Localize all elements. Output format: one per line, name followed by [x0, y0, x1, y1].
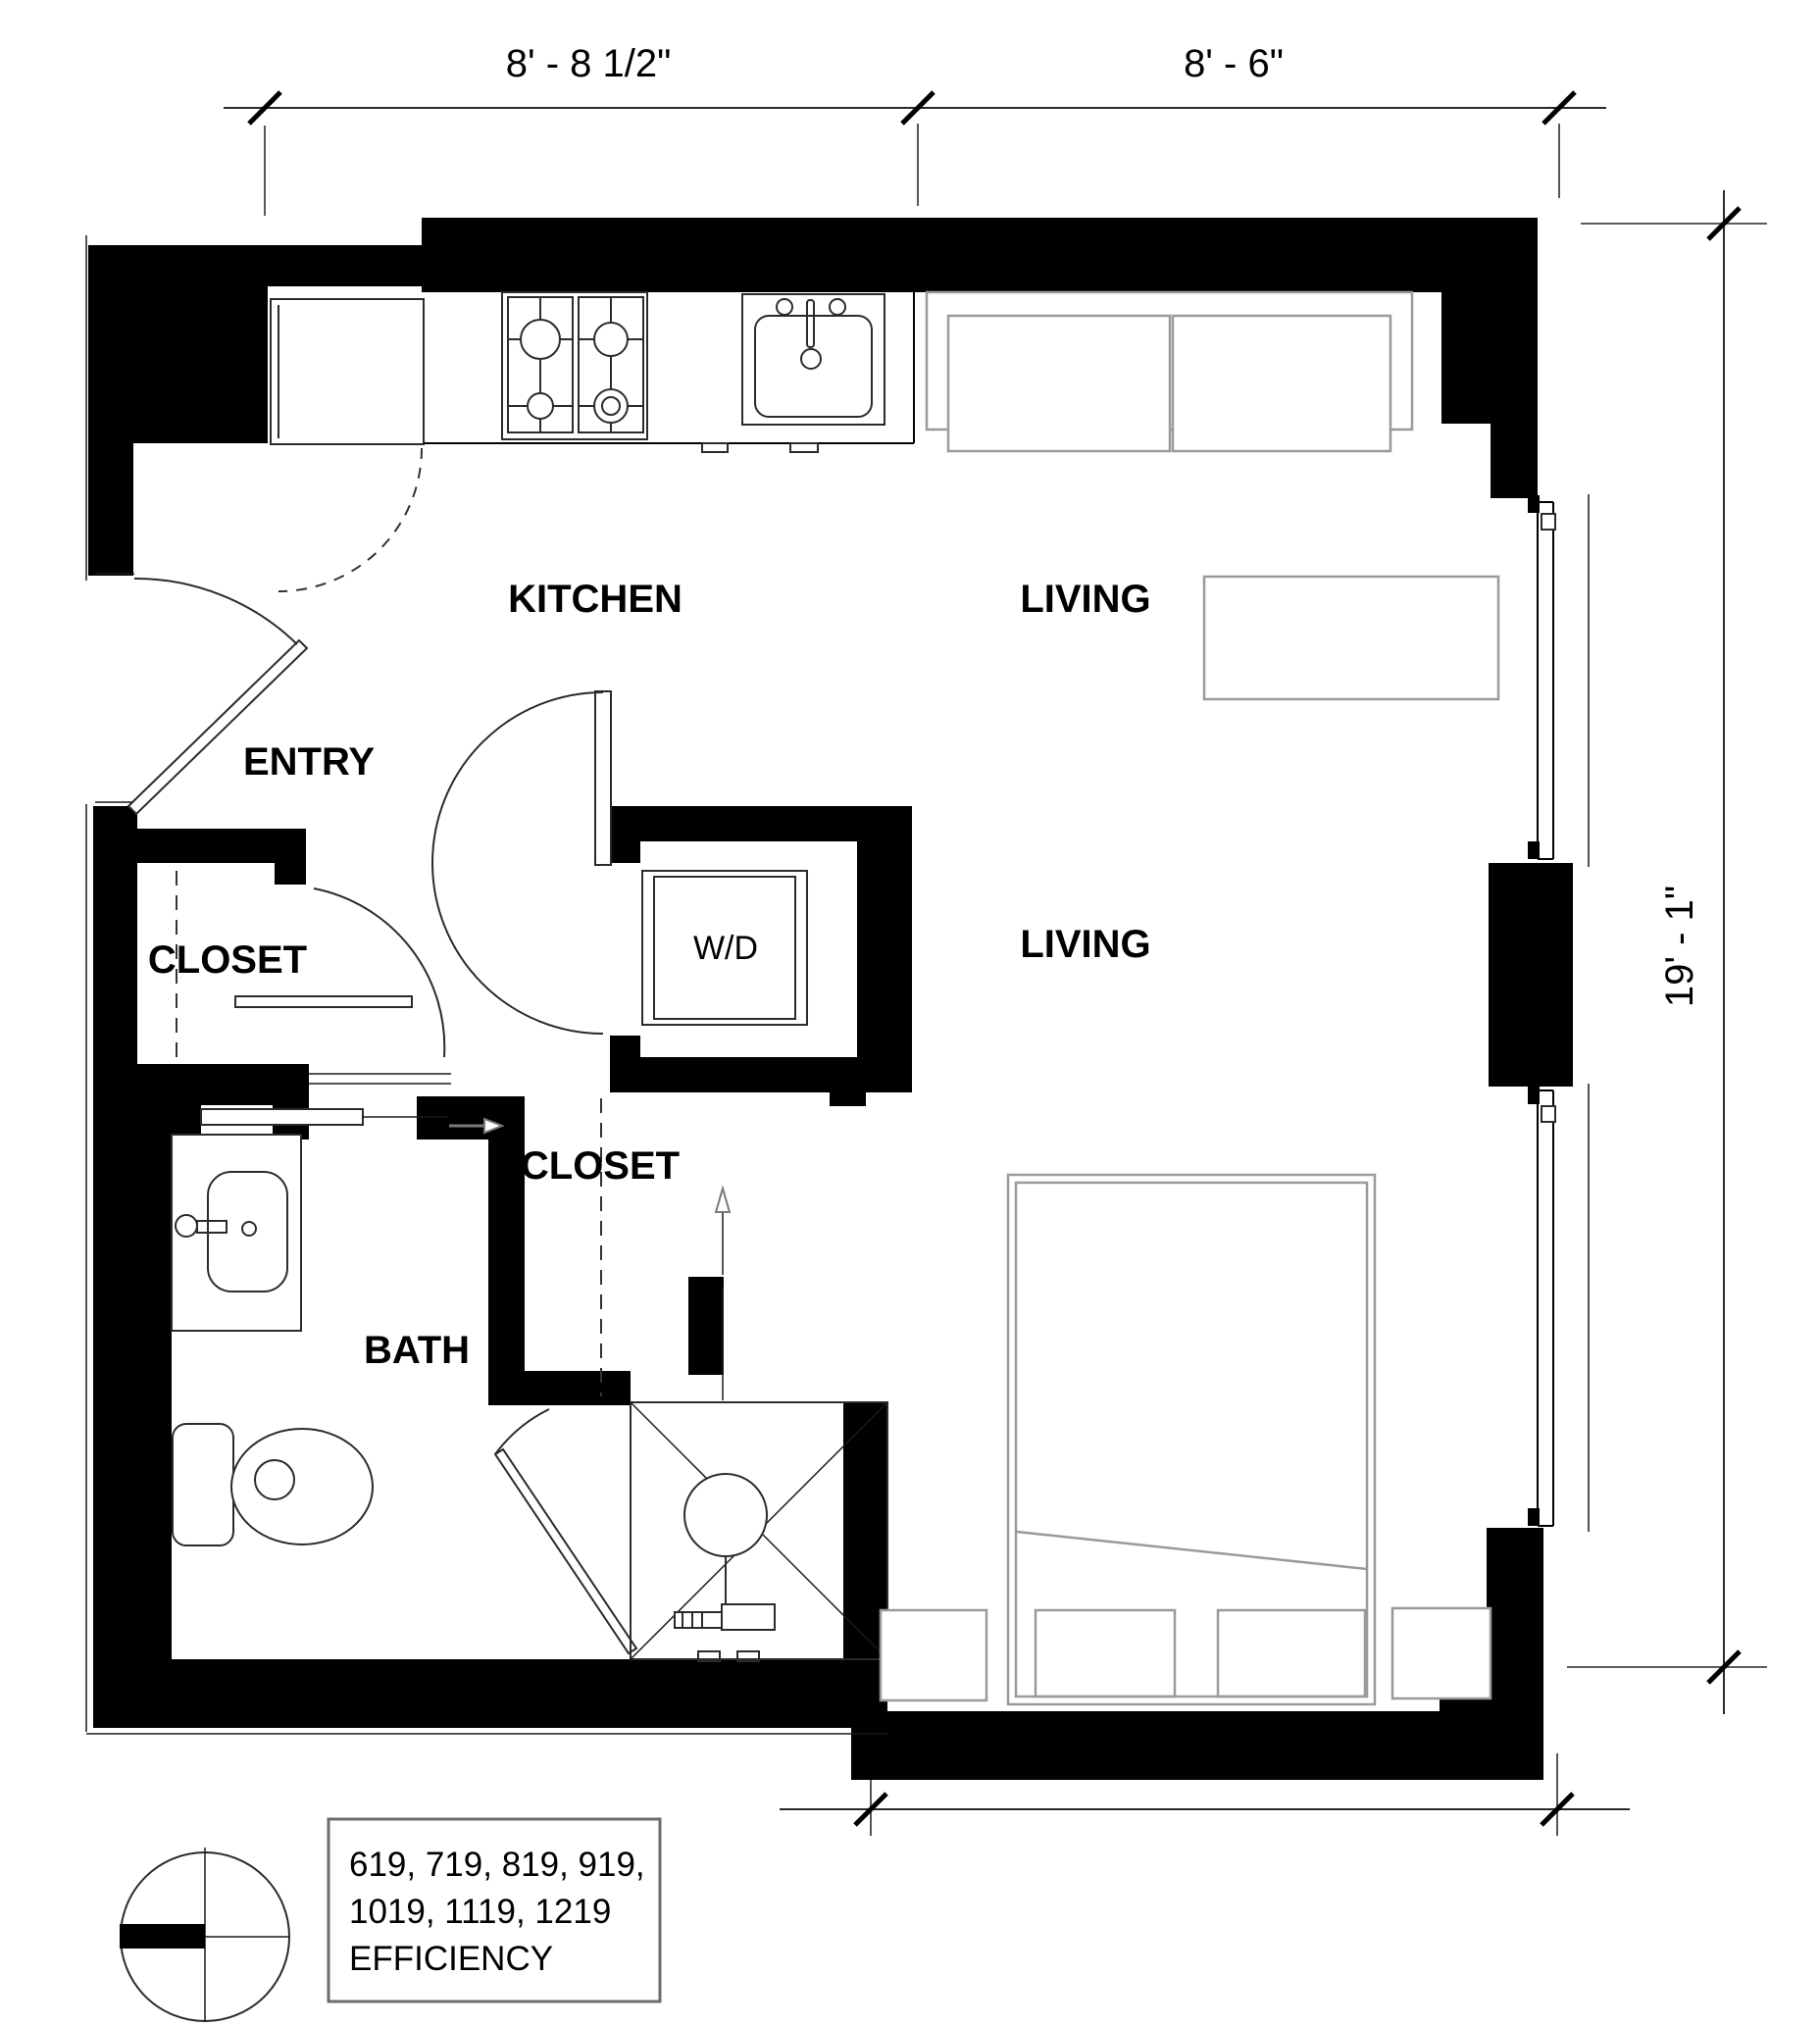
- bed-icon: [1008, 1175, 1375, 1704]
- window-jamb-tab: [1528, 1087, 1540, 1104]
- unit-key-box: 619, 719, 819, 919, 1019, 1119, 1219 EFF…: [329, 1819, 660, 2001]
- stove-icon: [502, 292, 647, 443]
- keyplan-compass-icon: [120, 1848, 289, 2022]
- floor-plan-canvas: 8' - 8 1/2" 8' - 6" 19' - 1" 9' - 1 1/2": [0, 0, 1820, 2026]
- unit-numbers-line2: 1019, 1119, 1219: [349, 1893, 611, 1931]
- unit-type-label: EFFICIENCY: [349, 1940, 553, 1978]
- room-label-living-lower: LIVING: [1020, 923, 1150, 966]
- door-leaf: [495, 1449, 636, 1653]
- door-swing-arc: [278, 448, 422, 591]
- nightstand-icon: [1392, 1608, 1491, 1698]
- dim-top-left-label: 8' - 8 1/2": [506, 42, 672, 85]
- room-label-entry: ENTRY: [243, 740, 375, 784]
- window-jamb-tab: [1528, 1508, 1540, 1526]
- room-label-closet-entry: CLOSET: [148, 938, 307, 982]
- window-upper: [1528, 494, 1589, 867]
- coffee-table-icon: [1204, 577, 1498, 699]
- sofa-icon: [927, 292, 1412, 451]
- dimension-right: 19' - 1": [1567, 190, 1767, 1714]
- refrigerator-icon: [271, 299, 424, 591]
- toilet-icon: [173, 1424, 373, 1545]
- pocket-door-leaf: [201, 1109, 363, 1125]
- washer-dryer-label: W/D: [693, 930, 758, 967]
- window-jamb-tab: [1528, 841, 1540, 859]
- bath-sink-icon: [172, 1135, 301, 1331]
- room-label-bath: BATH: [364, 1329, 470, 1372]
- door-leaf: [595, 691, 611, 865]
- door-swing-arc: [432, 692, 603, 1034]
- window-jamb-tab: [1528, 495, 1540, 513]
- room-label-kitchen: KITCHEN: [508, 578, 682, 621]
- room-label-living-upper: LIVING: [1020, 578, 1150, 621]
- kitchen-sink-icon: [742, 294, 885, 425]
- washer-closet-door: [432, 691, 611, 1034]
- dimension-top: 8' - 8 1/2" 8' - 6": [224, 42, 1606, 216]
- door-swing-arc: [495, 1409, 549, 1454]
- floor-plan-drawing: 8' - 8 1/2" 8' - 6" 19' - 1" 9' - 1 1/2": [0, 0, 1820, 2026]
- unit-numbers-line1: 619, 719, 819, 919,: [349, 1846, 645, 1884]
- room-label-closet-hall: CLOSET: [521, 1144, 680, 1188]
- washer-dryer-icon: W/D: [642, 871, 807, 1025]
- door-leaf: [235, 996, 412, 1007]
- window-lower: [1528, 1084, 1589, 1532]
- door-swing-arc: [314, 888, 444, 1057]
- dim-top-right-label: 8' - 6": [1184, 42, 1284, 85]
- door-swing-arc: [134, 579, 297, 644]
- nightstand-icon: [881, 1610, 986, 1700]
- dim-right-label: 19' - 1": [1658, 886, 1701, 1007]
- door-leaf: [128, 640, 307, 814]
- shower-door: [495, 1409, 636, 1653]
